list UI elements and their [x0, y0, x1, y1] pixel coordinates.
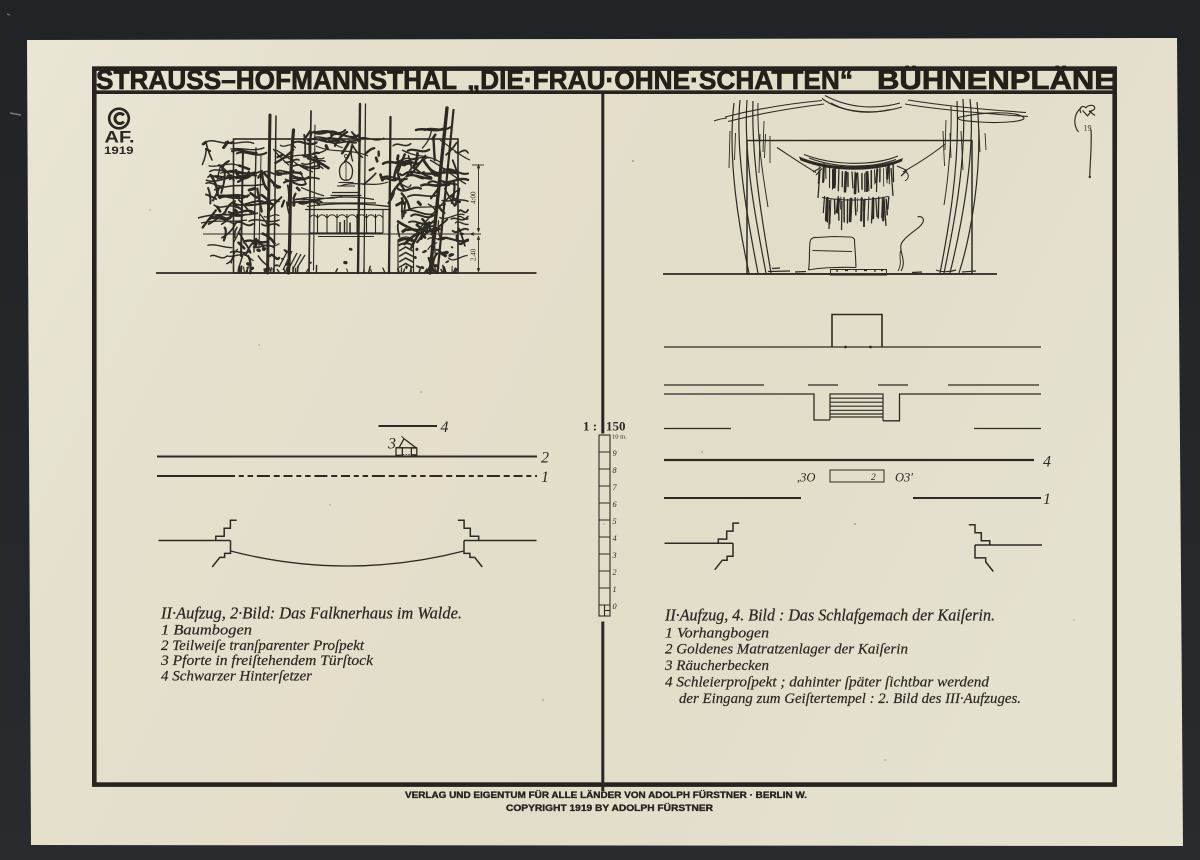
- svg-text:3: 3: [612, 551, 617, 560]
- svg-text:VERLAG UND EIGENTUM FÜR ALLE L: VERLAG UND EIGENTUM FÜR ALLE LÄNDER VON …: [405, 790, 807, 801]
- svg-text:10 m.: 10 m.: [612, 434, 627, 441]
- svg-text:5: 5: [613, 517, 617, 526]
- svg-text:8: 8: [613, 466, 617, 475]
- svg-text:der Eingang zum Geiſtertempel: der Eingang zum Geiſtertempel : 2. Bild …: [679, 691, 1021, 707]
- svg-text:19: 19: [1084, 124, 1092, 133]
- svg-text:STRAUSS–HOFMANNSTHAL: STRAUSS–HOFMANNSTHAL: [96, 65, 457, 95]
- svg-text:4: 4: [441, 419, 449, 436]
- svg-text:2: 2: [871, 473, 876, 483]
- svg-text:COPYRIGHT 1919 BY ADOLPH FÜRST: COPYRIGHT 1919 BY ADOLPH FÜRSTNER: [506, 803, 713, 814]
- svg-text:„DIE·FRAU·OHNE·SCHATTEN“: „DIE·FRAU·OHNE·SCHATTEN“: [467, 65, 853, 95]
- svg-text:150: 150: [606, 419, 626, 434]
- svg-text:1: 1: [1043, 491, 1051, 508]
- svg-text:O3′: O3′: [895, 471, 913, 485]
- svg-text:1: 1: [613, 585, 617, 594]
- svg-text:,3O: ,3O: [797, 471, 815, 485]
- svg-text:2.40: 2.40: [470, 248, 478, 261]
- svg-text:4:00: 4:00: [470, 191, 478, 204]
- svg-text:2: 2: [613, 568, 617, 577]
- svg-text:4: 4: [613, 534, 617, 543]
- svg-text:BÜHNENPLÄNE: BÜHNENPLÄNE: [877, 65, 1115, 95]
- svg-text:II·Aufzug, 4. Bild : Das Schl: II·Aufzug, 4. Bild : Das Schlafgemach de…: [664, 606, 995, 625]
- svg-text:4 Schwarzer Hinterſetzer: 4 Schwarzer Hinterſetzer: [161, 669, 312, 685]
- svg-text:1: 1: [541, 469, 549, 486]
- svg-text:II·Aufzug, 2·Bild: Das Falkne: II·Aufzug, 2·Bild: Das Falknerhaus im Wa…: [160, 603, 462, 622]
- svg-text:1 :: 1 :: [583, 419, 597, 434]
- svg-text:3 Pforte in freiſtehendem Tür: 3 Pforte in freiſtehendem Türſtock: [160, 653, 374, 669]
- svg-text:4 Schleierproſpekt ; dahinte: 4 Schleierproſpekt ; dahinter ſpäter ſic…: [665, 674, 990, 690]
- svg-text:1 Baumbogen: 1 Baumbogen: [161, 622, 252, 638]
- svg-text:3 Räucherbecken: 3 Räucherbecken: [664, 658, 769, 674]
- svg-text:2: 2: [541, 450, 549, 467]
- svg-text:0: 0: [613, 602, 617, 611]
- svg-text:3: 3: [387, 436, 396, 453]
- svg-text:4: 4: [1043, 454, 1051, 471]
- svg-text:1919: 1919: [104, 145, 134, 157]
- svg-text:1 Vorhangbogen: 1 Vorhangbogen: [665, 625, 769, 641]
- svg-text:2 Goldenes Matratzenlager der: 2 Goldenes Matratzenlager der Kaiſerin: [665, 642, 908, 658]
- svg-text:2 Teilweiſe tranſparenter Pro: 2 Teilweiſe tranſparenter Proſpekt: [161, 638, 365, 654]
- svg-text:9: 9: [613, 449, 617, 458]
